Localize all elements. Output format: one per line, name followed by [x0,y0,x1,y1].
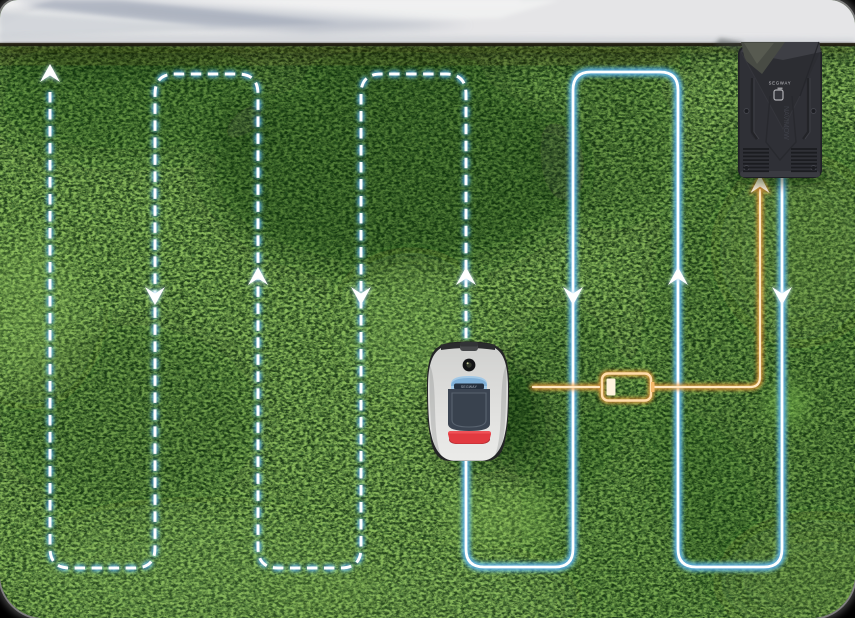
svg-text:SEGWAY: SEGWAY [769,81,792,86]
svg-text:SEGWAY: SEGWAY [461,385,478,389]
svg-text:NAVIMOW: NAVIMOW [782,106,789,140]
